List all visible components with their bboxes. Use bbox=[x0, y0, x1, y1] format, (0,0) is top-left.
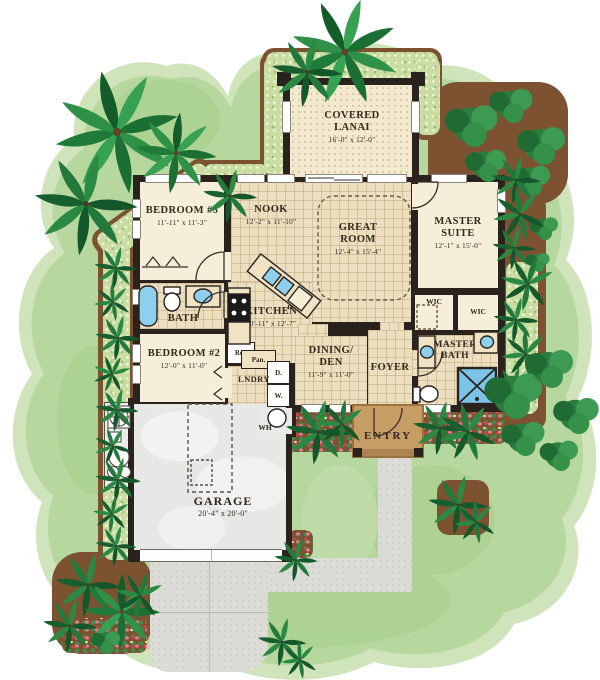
hedge-left bbox=[103, 242, 130, 560]
flowerbed-bottom-left bbox=[62, 618, 147, 653]
door-gap-bedroom3 bbox=[224, 252, 231, 280]
door-gap-foyer-great bbox=[380, 322, 404, 330]
window bbox=[176, 175, 200, 182]
window bbox=[498, 190, 505, 212]
window bbox=[432, 175, 466, 182]
window bbox=[133, 200, 140, 217]
label-nook: NOOK 12'-2" x 11'-10" bbox=[238, 204, 304, 226]
hedge-lanai-right bbox=[416, 57, 440, 135]
window bbox=[238, 175, 264, 182]
label-wic-2: WIC bbox=[462, 308, 494, 316]
window bbox=[424, 405, 450, 412]
entry-post-left bbox=[353, 448, 362, 457]
label-bedroom-2: BEDROOM #2 12'-0" x 11'-0" bbox=[144, 348, 224, 370]
label-dining-den: DINING/ DEN 11'-9" x 11'-0" bbox=[302, 345, 360, 379]
washer: W. bbox=[267, 384, 290, 407]
door-gap-bedroom2 bbox=[225, 368, 232, 398]
label-laundry: LNDRY bbox=[233, 375, 275, 385]
window bbox=[133, 366, 140, 383]
room-bedroom-3 bbox=[140, 182, 224, 280]
window bbox=[330, 405, 350, 412]
entry-stoop: ENTRY bbox=[352, 404, 424, 458]
driveway-joint-horizontal bbox=[150, 612, 268, 613]
window bbox=[268, 175, 294, 182]
driveway bbox=[150, 556, 268, 672]
label-master-bath: MASTER BATH bbox=[428, 340, 482, 361]
label-wic-1: WIC bbox=[418, 298, 450, 306]
window bbox=[412, 102, 419, 132]
garage-door bbox=[140, 549, 282, 562]
label-garage: GARAGE 20'-4" x 20'-0" bbox=[177, 495, 269, 518]
driveway-joint-vertical bbox=[209, 556, 210, 672]
window bbox=[133, 221, 140, 238]
window bbox=[133, 290, 140, 304]
label-bath: BATH bbox=[158, 313, 208, 325]
window bbox=[368, 175, 406, 182]
hedge-right bbox=[506, 262, 538, 414]
garage-door-divider bbox=[211, 550, 212, 561]
label-great-room: GREAT ROOM 12'-4" x 15'-4" bbox=[330, 222, 386, 256]
door-gap-master-bath bbox=[412, 350, 418, 376]
flowerbed-front-left bbox=[286, 406, 358, 452]
entry-post-right bbox=[414, 448, 423, 457]
door-gap-bath bbox=[224, 292, 231, 318]
door-gap-master-suite bbox=[412, 184, 418, 210]
window bbox=[133, 345, 140, 362]
sliding-door bbox=[306, 175, 362, 182]
water-heater-label: WH bbox=[250, 424, 280, 432]
dishwasher-label: DW bbox=[284, 305, 302, 312]
floor-plan-canvas: COVERED LANAI 16'-0" x 12'-0" BEDROOM #3… bbox=[0, 0, 600, 680]
label-bedroom-3: BEDROOM #3 11'-11" x 11'-3" bbox=[142, 205, 222, 227]
label-foyer: FOYER bbox=[368, 362, 412, 374]
label-master-suite: MASTER SUITE 12'-1" x 15'-0" bbox=[426, 216, 490, 250]
walkway-vertical bbox=[378, 450, 412, 592]
window bbox=[146, 175, 170, 182]
window bbox=[283, 102, 290, 132]
mulch-walkway-right bbox=[437, 480, 489, 535]
walkway-horizontal bbox=[268, 558, 380, 592]
label-covered-lanai: COVERED LANAI 16'-0" x 12'-0" bbox=[308, 110, 396, 144]
window bbox=[302, 405, 322, 412]
label-entry: ENTRY bbox=[354, 430, 422, 442]
